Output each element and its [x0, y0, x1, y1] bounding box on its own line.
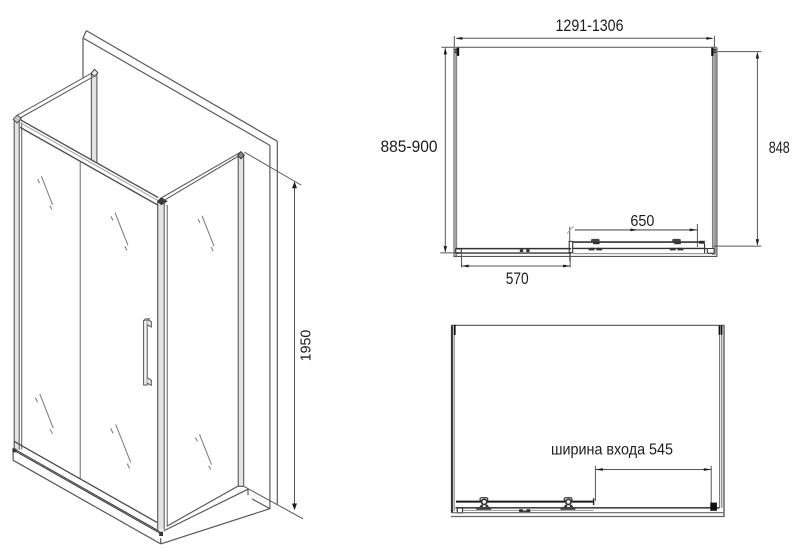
svg-text:650: 650 — [630, 213, 654, 230]
svg-text:1950: 1950 — [298, 330, 315, 362]
svg-text:570: 570 — [506, 270, 529, 288]
svg-text:ширина входа 545: ширина входа 545 — [551, 441, 673, 458]
svg-text:1291-1306: 1291-1306 — [556, 17, 624, 35]
svg-text:848: 848 — [769, 139, 790, 157]
svg-text:885-900: 885-900 — [381, 138, 438, 156]
